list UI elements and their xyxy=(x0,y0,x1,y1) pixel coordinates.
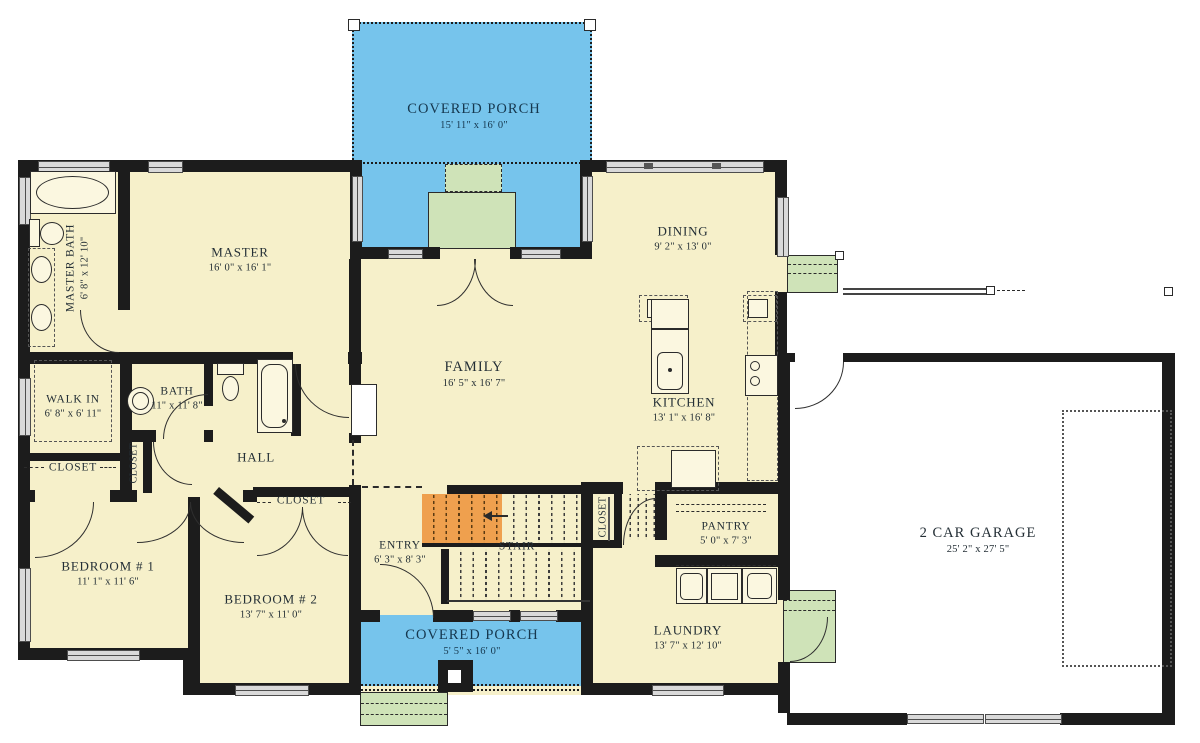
porch-landing xyxy=(428,192,516,249)
open-passage xyxy=(352,440,354,485)
wall xyxy=(778,362,790,600)
window xyxy=(777,197,789,257)
dining-exterior-steps xyxy=(787,255,838,293)
wall xyxy=(1060,713,1175,725)
closet-rod xyxy=(24,467,44,468)
room-dims: 5' 0" x 7' 3" xyxy=(700,535,752,549)
wall xyxy=(132,430,156,442)
laundry-sink-basin xyxy=(747,573,772,599)
window xyxy=(235,685,309,696)
room-dims: 15' 11" x 16' 0" xyxy=(407,119,540,133)
toilet-tank xyxy=(29,219,40,247)
room-name: COVERED PORCH xyxy=(405,626,538,645)
window xyxy=(473,611,511,621)
room-label-bath: BATH 11" x 11' 8" xyxy=(151,385,202,414)
wall xyxy=(843,353,1175,362)
range-burner xyxy=(750,361,760,371)
closet-rod xyxy=(338,502,351,503)
room-dims: 6' 3" x 8' 3" xyxy=(374,554,426,568)
room-name: CLOSET xyxy=(49,461,97,476)
room-name: DINING xyxy=(654,224,711,241)
toilet-bowl xyxy=(222,376,239,401)
sink xyxy=(31,304,52,331)
window-mullion xyxy=(712,163,721,169)
room-label-family: FAMILY 16' 5" x 16' 7" xyxy=(443,358,506,390)
room-name: ENTRY xyxy=(374,539,426,554)
room-label-stair: STAIR xyxy=(499,540,535,555)
laundry-counter xyxy=(676,565,776,566)
wall xyxy=(581,494,593,695)
stair-arrowhead-icon xyxy=(483,511,492,521)
room-name: 2 CAR GARAGE xyxy=(920,524,1037,543)
room-name: BEDROOM # 2 xyxy=(224,592,317,609)
window xyxy=(19,568,31,642)
room-label-walk-in: WALK IN 6' 8" x 6' 11" xyxy=(45,393,102,422)
room-label-closet-hall-small: CLOSET xyxy=(128,443,141,484)
covered-porch-top-area xyxy=(352,22,592,164)
room-dims: 5' 5" x 16' 0" xyxy=(405,645,538,659)
porch-post-icon xyxy=(348,19,360,31)
wall xyxy=(787,713,907,725)
room-dims: 6' 8" x 6' 11" xyxy=(45,408,102,422)
window xyxy=(582,176,593,242)
kitchen-faucet xyxy=(668,368,672,372)
wall xyxy=(655,494,667,540)
railing-continuation xyxy=(997,290,1025,291)
room-label-garage: 2 CAR GARAGE 25' 2" x 27' 5" xyxy=(920,524,1037,556)
wall xyxy=(581,482,623,494)
kitchen-cabinet xyxy=(671,450,716,488)
pedestal-sink-basin xyxy=(132,392,149,410)
open-passage xyxy=(362,486,422,488)
room-label-hall: HALL xyxy=(237,450,275,467)
closet-rod xyxy=(257,502,271,503)
front-porch-steps xyxy=(360,692,448,726)
room-dims: 6' 8" x 12' 10" xyxy=(79,224,93,312)
porch-column-center xyxy=(448,670,461,683)
room-name: STAIR xyxy=(499,540,535,555)
room-label-covered-porch-bottom: COVERED PORCH 5' 5" x 16' 0" xyxy=(405,626,538,658)
washer-drum xyxy=(680,573,703,600)
porch-post-icon xyxy=(584,19,596,31)
room-label-kitchen: KITCHEN 13' 1" x 16' 8" xyxy=(653,395,716,426)
wall xyxy=(787,353,795,362)
room-dims: 13' 7" x 12' 10" xyxy=(654,640,722,654)
pantry-shelf xyxy=(676,511,766,512)
closet-rod xyxy=(100,467,116,468)
window xyxy=(352,176,363,242)
room-label-master-bath: MASTER BATH 6' 8" x 12' 10" xyxy=(64,224,93,312)
pantry-shelf xyxy=(676,504,766,505)
wall xyxy=(357,610,380,622)
room-name: LAUNDRY xyxy=(654,623,722,640)
room-label-pantry: PANTRY 5' 0" x 7' 3" xyxy=(700,520,752,549)
stair-upper-flight xyxy=(502,494,590,543)
room-name: COVERED PORCH xyxy=(407,100,540,119)
floor-plan: COVERED PORCH 15' 11" x 16' 0" MASTER 16… xyxy=(0,0,1200,743)
room-label-closet-hall: CLOSET xyxy=(49,461,97,476)
room-dims: 16' 5" x 16' 7" xyxy=(443,377,506,391)
room-name: BATH xyxy=(151,385,202,400)
wall xyxy=(348,352,362,364)
room-dims: 13' 1" x 16' 8" xyxy=(653,412,716,426)
garage-door xyxy=(985,714,1062,724)
railing-post-icon xyxy=(1164,287,1173,296)
room-label-closet-stair: CLOSET xyxy=(597,497,610,538)
window xyxy=(67,650,140,661)
railing-post-icon xyxy=(986,286,995,295)
wall xyxy=(441,549,449,604)
sink xyxy=(31,256,52,283)
window xyxy=(521,249,561,259)
window-mullion xyxy=(644,163,653,169)
room-name: HALL xyxy=(237,450,275,467)
room-label-bedroom-1: BEDROOM # 1 11' 1" x 11' 6" xyxy=(61,559,154,590)
room-name: KITCHEN xyxy=(653,395,716,412)
room-dims: 13' 7" x 11' 0" xyxy=(224,609,317,623)
wall xyxy=(110,490,137,502)
kitchen-column xyxy=(748,299,768,318)
garage-door xyxy=(907,714,984,724)
room-label-entry: ENTRY 6' 3" x 8' 3" xyxy=(374,539,426,568)
stair-direction-arrow-icon xyxy=(492,515,508,517)
wall xyxy=(18,490,35,502)
railing xyxy=(843,288,990,290)
wall xyxy=(143,433,152,493)
toilet-tank xyxy=(217,363,244,375)
room-dims: 11" x 11' 8" xyxy=(151,400,202,414)
garage-attic-outline xyxy=(1062,410,1172,667)
room-name: CLOSET xyxy=(597,497,610,538)
wall xyxy=(118,162,130,310)
fireplace xyxy=(351,384,377,436)
room-name: WALK IN xyxy=(45,393,102,408)
room-label-covered-porch-top: COVERED PORCH 15' 11" x 16' 0" xyxy=(407,100,540,132)
wall xyxy=(349,259,361,385)
room-name: CLOSET xyxy=(277,494,325,509)
window xyxy=(388,249,423,259)
stair-edge-line xyxy=(447,600,590,602)
range xyxy=(745,355,778,396)
room-dims: 9' 2" x 13' 0" xyxy=(654,241,711,255)
dryer-drum xyxy=(711,573,738,600)
wall xyxy=(614,494,622,544)
window xyxy=(520,611,558,621)
room-dims: 25' 2" x 27' 5" xyxy=(920,543,1037,557)
window xyxy=(148,161,183,173)
wall xyxy=(556,610,581,622)
room-label-bedroom-2: BEDROOM # 2 13' 7" x 11' 0" xyxy=(224,592,317,623)
stair-lower-flight xyxy=(449,549,590,600)
wall xyxy=(188,497,200,687)
room-name: MASTER BATH xyxy=(64,224,79,312)
room-name: PANTRY xyxy=(700,520,752,535)
range-burner xyxy=(750,376,760,386)
railing-post-icon xyxy=(835,251,844,260)
room-label-dining: DINING 9' 2" x 13' 0" xyxy=(654,224,711,255)
room-label-closet-bedroom-2: CLOSET xyxy=(277,494,325,509)
railing xyxy=(843,293,990,295)
room-dims: 11' 1" x 11' 6" xyxy=(61,576,154,590)
room-name: CLOSET xyxy=(128,443,141,484)
bathtub-drain xyxy=(282,419,286,423)
wall xyxy=(447,485,592,494)
wall xyxy=(433,610,473,622)
window xyxy=(19,378,31,436)
wall xyxy=(349,485,361,695)
toilet-bowl xyxy=(40,222,64,245)
room-label-laundry: LAUNDRY 13' 7" x 12' 10" xyxy=(654,623,722,654)
bathtub-basin xyxy=(36,176,109,209)
window xyxy=(606,161,764,173)
room-dims: 16' 0" x 16' 1" xyxy=(209,262,272,276)
room-name: FAMILY xyxy=(443,358,506,377)
island-divider xyxy=(652,328,688,330)
room-label-master: MASTER 16' 0" x 16' 1" xyxy=(209,245,272,276)
room-name: BEDROOM # 1 xyxy=(61,559,154,576)
room-name: MASTER xyxy=(209,245,272,262)
window xyxy=(652,685,724,696)
wall xyxy=(585,540,622,548)
porch-step xyxy=(445,164,502,192)
